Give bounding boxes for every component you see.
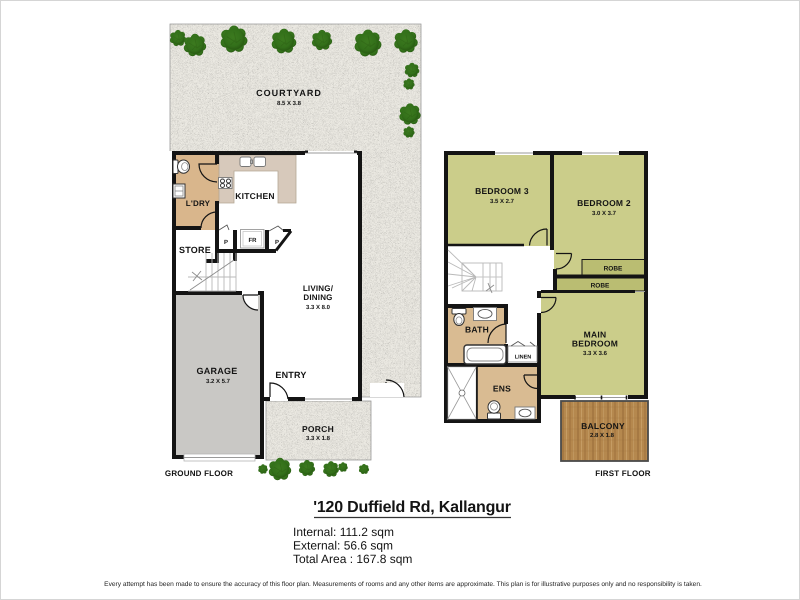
svg-text:LIVING/: LIVING/ xyxy=(303,284,334,293)
svg-text:3.3 X 8.0: 3.3 X 8.0 xyxy=(306,304,331,311)
svg-text:Total Area : 167.8 sqm: Total Area : 167.8 sqm xyxy=(293,552,412,566)
svg-text:2.8 X 1.8: 2.8 X 1.8 xyxy=(590,432,615,439)
svg-text:LINEN: LINEN xyxy=(515,355,532,361)
svg-text:GROUND FLOOR: GROUND FLOOR xyxy=(165,469,233,478)
svg-text:BEDROOM 2: BEDROOM 2 xyxy=(577,198,631,208)
svg-text:L'DRY: L'DRY xyxy=(186,199,211,208)
svg-text:FIRST FLOOR: FIRST FLOOR xyxy=(595,469,651,478)
svg-text:BATH: BATH xyxy=(465,325,489,335)
svg-text:3.2 X 5.7: 3.2 X 5.7 xyxy=(206,378,231,385)
svg-text:ROBE: ROBE xyxy=(591,283,610,290)
svg-text:3.3 X 1.8: 3.3 X 1.8 xyxy=(306,435,331,442)
svg-text:External: 56.6 sqm: External: 56.6 sqm xyxy=(293,539,393,553)
svg-text:BALCONY: BALCONY xyxy=(581,421,625,431)
svg-text:GARAGE: GARAGE xyxy=(196,366,237,376)
svg-text:3.0 X 3.7: 3.0 X 3.7 xyxy=(592,210,617,217)
svg-text:3.3 X 3.6: 3.3 X 3.6 xyxy=(583,350,608,357)
svg-text:ENS: ENS xyxy=(493,384,511,394)
svg-text:BEDROOM 3: BEDROOM 3 xyxy=(475,186,529,196)
svg-text:'120 Duffield Rd, Kallangur: '120 Duffield Rd, Kallangur xyxy=(313,499,511,516)
svg-text:P: P xyxy=(275,239,279,246)
svg-text:ROBE: ROBE xyxy=(604,266,623,273)
svg-text:BEDROOM: BEDROOM xyxy=(572,339,618,349)
svg-text:COURTYARD: COURTYARD xyxy=(256,88,322,98)
svg-text:8.5 X 3.8: 8.5 X 3.8 xyxy=(277,100,302,107)
svg-text:3.5 X 2.7: 3.5 X 2.7 xyxy=(490,198,515,205)
svg-text:STORE: STORE xyxy=(179,245,211,255)
svg-text:Every attempt has been made to: Every attempt has been made to ensure th… xyxy=(104,581,702,588)
svg-text:ENTRY: ENTRY xyxy=(275,370,306,380)
svg-text:KITCHEN: KITCHEN xyxy=(235,191,275,201)
svg-text:FR: FR xyxy=(249,237,258,244)
svg-text:DINING: DINING xyxy=(303,293,332,302)
svg-text:Internal: 111.2 sqm: Internal: 111.2 sqm xyxy=(293,525,394,539)
svg-text:PORCH: PORCH xyxy=(302,424,334,434)
svg-text:P: P xyxy=(224,239,228,246)
